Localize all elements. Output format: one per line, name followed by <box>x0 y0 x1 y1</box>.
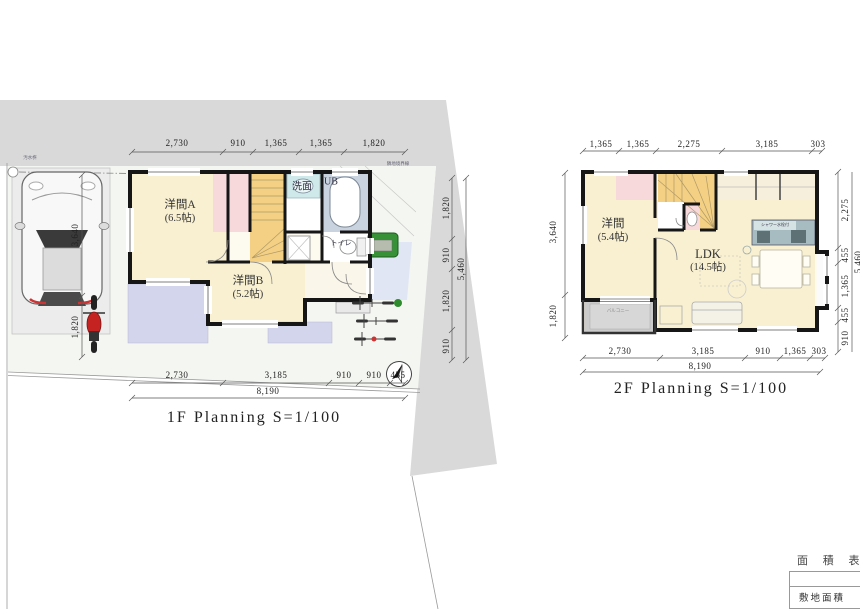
f1-dim-right-3: 1,820 <box>441 290 451 313</box>
f2-ldk-label: LDK (14.5帖) <box>690 247 726 275</box>
f2-dim-right-5: 910 <box>840 331 850 346</box>
f2-room-label: 洋間 (5.4帖) <box>598 218 629 244</box>
f2-kitchen-note: シャワー水栓付 <box>761 222 789 228</box>
f1-dim-total-width: 8,190 <box>257 386 280 396</box>
f2-dim-left-2: 1,820 <box>548 305 558 328</box>
f1-dim-top-4: 1,365 <box>310 138 333 148</box>
f2-dim-top-5: 303 <box>811 139 826 149</box>
area-table: 敷地面積 <box>789 571 860 609</box>
f2-dim-total-height: 5,460 <box>853 251 860 274</box>
f1-dim-total-height: 5,460 <box>456 258 466 281</box>
area-table-divider <box>790 586 860 587</box>
f2-dim-bottom-3: 910 <box>756 346 771 356</box>
f2-dim-top-4: 3,185 <box>756 139 779 149</box>
f1-dim-right-4: 910 <box>441 339 451 354</box>
f2-dim-bottom-4: 1,365 <box>784 346 807 356</box>
boundary-label: 隣地境界線 <box>387 161 410 167</box>
area-table-row-site-area: 敷地面積 <box>799 590 845 604</box>
f1-dim-bottom-5: 455 <box>391 370 406 380</box>
f2-dim-top-2: 1,365 <box>627 139 650 149</box>
f1-room-b-label: 洋間B (5.2帖) <box>233 275 264 301</box>
manhole-label: 汚水桝 <box>23 155 37 161</box>
f2-dim-right-1: 2,275 <box>840 199 850 222</box>
f1-dim-left-1: 3,640 <box>70 224 80 247</box>
f1-stairs <box>250 172 285 262</box>
f1-dim-top-2: 910 <box>231 138 246 148</box>
f1-room-a-label: 洋間A (6.5帖) <box>164 199 195 225</box>
f1-dim-right-1: 1,820 <box>441 197 451 220</box>
f2-dim-right-4: 455 <box>840 308 850 323</box>
f1-dim-bottom-4: 910 <box>367 370 382 380</box>
f1-dim-top-3: 1,365 <box>265 138 288 148</box>
f2-dim-top-1: 1,365 <box>590 139 613 149</box>
f1-dim-right-2: 910 <box>441 248 451 263</box>
f1-dim-bottom-3: 910 <box>337 370 352 380</box>
f1-title: 1F Planning S=1/100 <box>167 409 341 427</box>
f1-dim-bottom-1: 2,730 <box>166 370 189 380</box>
f1-closet <box>213 172 250 232</box>
f2-balcony-label: バルコニー <box>607 308 629 314</box>
f2-dim-bottom-2: 3,185 <box>692 346 715 356</box>
f2-dim-left-1: 3,640 <box>548 221 558 244</box>
f2-dim-bottom-1: 2,730 <box>609 346 632 356</box>
f2-dim-right-3: 1,365 <box>840 275 850 298</box>
f2-closet <box>616 174 655 200</box>
f1-dim-top-5: 1,820 <box>363 138 386 148</box>
f2-title: 2F Planning S=1/100 <box>614 380 788 398</box>
site-plan-drawing <box>0 0 860 609</box>
f1-dim-bottom-2: 3,185 <box>265 370 288 380</box>
f1-entrance-floor <box>305 262 370 300</box>
car <box>15 172 109 306</box>
f1-bath-label: UB <box>324 177 338 188</box>
floor-plan-sheet: { "colors": { "road": "#d9d9d9", "yard":… <box>0 0 860 609</box>
f1-dim-left-2: 1,820 <box>70 316 80 339</box>
f2-dim-bottom-5: 303 <box>812 346 827 356</box>
f2-dim-top-3: 2,275 <box>678 139 701 149</box>
f2-hall <box>658 202 684 230</box>
manhole-symbol <box>8 167 18 177</box>
f2-dim-right-2: 455 <box>840 248 850 263</box>
f1-dim-top-1: 2,730 <box>166 138 189 148</box>
f1-toilet-label: トイレ <box>331 238 352 248</box>
bicycles <box>352 296 402 346</box>
terrace-1 <box>128 284 208 343</box>
f2-dim-total-width: 8,190 <box>689 361 712 371</box>
f1-washroom-label: 洗面 <box>292 178 312 193</box>
area-table-heading: 面 積 表 <box>797 552 860 568</box>
